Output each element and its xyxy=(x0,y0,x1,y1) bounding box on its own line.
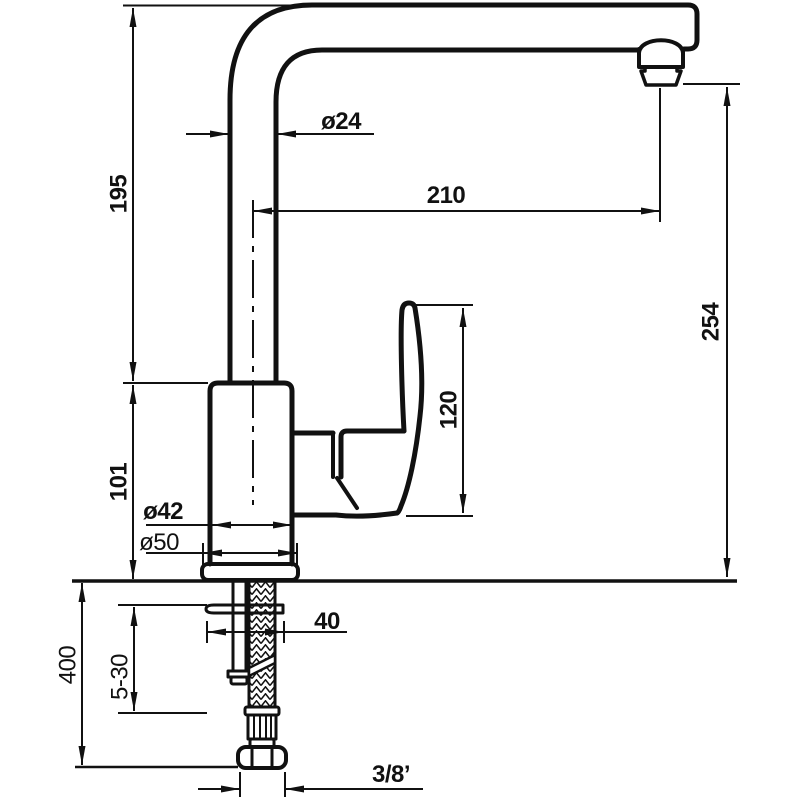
dimension-spout-reach: 210 xyxy=(253,88,660,222)
mounting-hardware xyxy=(206,581,286,768)
hose-fitting-ribs xyxy=(254,715,271,739)
dim-label-mount-width: 40 xyxy=(314,608,340,635)
aerator-dome xyxy=(639,40,683,53)
hose-nut xyxy=(238,747,286,768)
faucet-outline xyxy=(202,5,697,580)
dim-label-body-height: 101 xyxy=(106,463,133,502)
aerator-housing xyxy=(639,49,683,67)
faucet-technical-drawing: 195 101 ø24 210 254 120 xyxy=(0,0,800,800)
dimension-pipe-diameter: ø24 xyxy=(186,108,374,138)
dimension-handle-height: 120 xyxy=(406,305,473,516)
flex-hose-braid xyxy=(249,581,275,707)
dimension-deck-thickness: 5-30 xyxy=(107,605,208,713)
dimension-base-diameter: ø50 xyxy=(139,529,297,565)
dimension-body-height: 101 xyxy=(106,385,137,579)
drawing-canvas: 195 101 ø24 210 254 120 xyxy=(0,0,800,800)
dim-label-base-diameter: ø50 xyxy=(139,529,179,556)
spout-inner-profile xyxy=(276,50,639,383)
body-diagonal xyxy=(337,478,357,508)
dim-label-overall-height: 254 xyxy=(698,302,725,342)
dim-label-body-diameter: ø42 xyxy=(143,498,183,525)
handle-cap xyxy=(341,431,404,477)
dim-label-handle-height: 120 xyxy=(436,391,463,430)
dim-label-thread-size: 3/8’ xyxy=(372,761,410,788)
base-plate xyxy=(202,564,298,580)
threaded-stud xyxy=(233,581,246,671)
dim-label-pipe-diameter: ø24 xyxy=(321,108,362,135)
handle-lever xyxy=(397,303,422,513)
aerator-tip xyxy=(641,67,681,85)
dim-label-deck-thickness: 5-30 xyxy=(107,654,134,700)
dim-label-spout-reach: 210 xyxy=(427,182,466,209)
stud-foot-lower xyxy=(231,677,247,684)
dimension-overall-height: 254 xyxy=(683,84,740,577)
hose-nut-facets xyxy=(252,749,272,766)
dimension-pipe-height: 195 xyxy=(106,6,311,384)
dim-label-pipe-height: 195 xyxy=(106,175,133,214)
dim-label-hose-length: 400 xyxy=(55,646,82,685)
handle-skirt xyxy=(292,513,397,516)
dimension-body-diameter: ø42 xyxy=(143,498,292,529)
dimension-hose-length: 400 xyxy=(55,583,86,765)
body-barrel xyxy=(210,383,292,564)
